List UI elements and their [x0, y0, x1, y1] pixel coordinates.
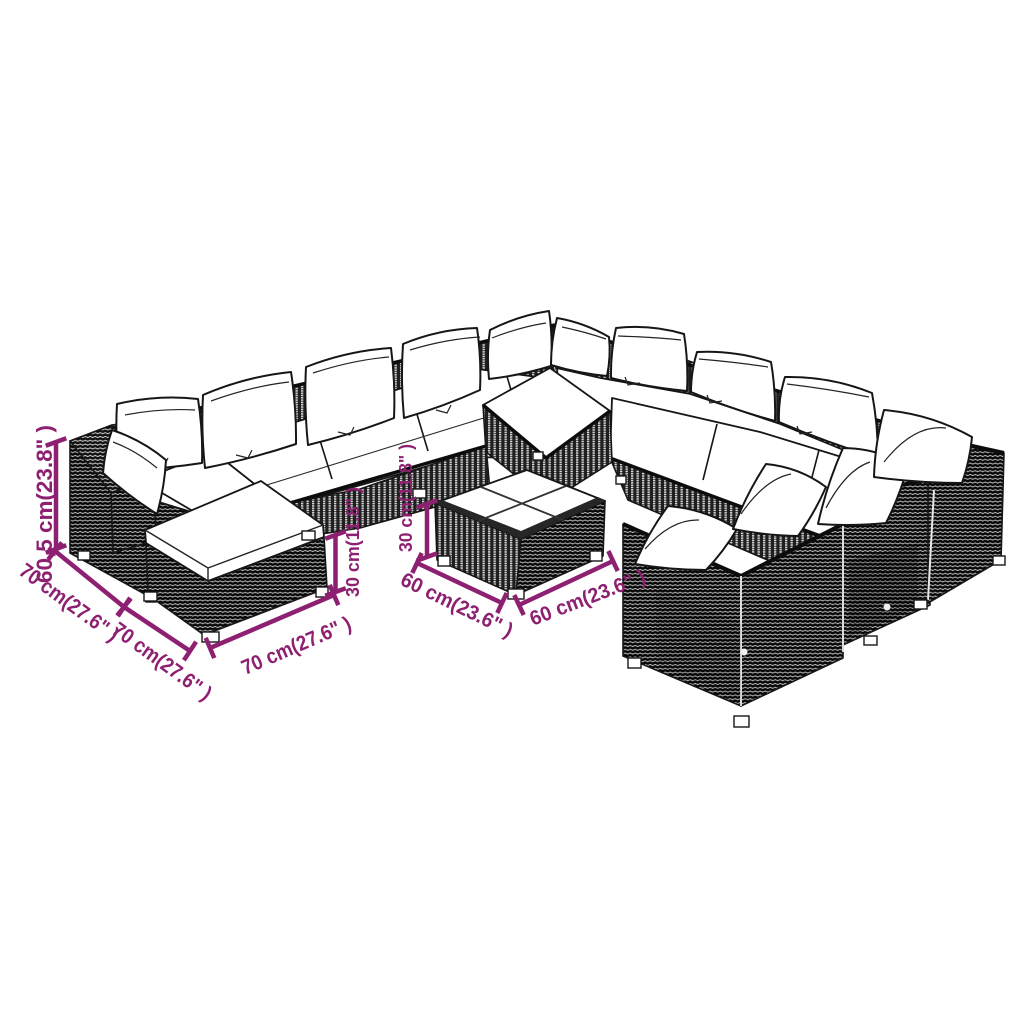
svg-text:30 cm(11.8" ): 30 cm(11.8" ) [343, 487, 363, 597]
svg-text:60,5 cm(23.8" ): 60,5 cm(23.8" ) [32, 425, 57, 583]
svg-text:30 cm(11.8" ): 30 cm(11.8" ) [396, 444, 416, 552]
